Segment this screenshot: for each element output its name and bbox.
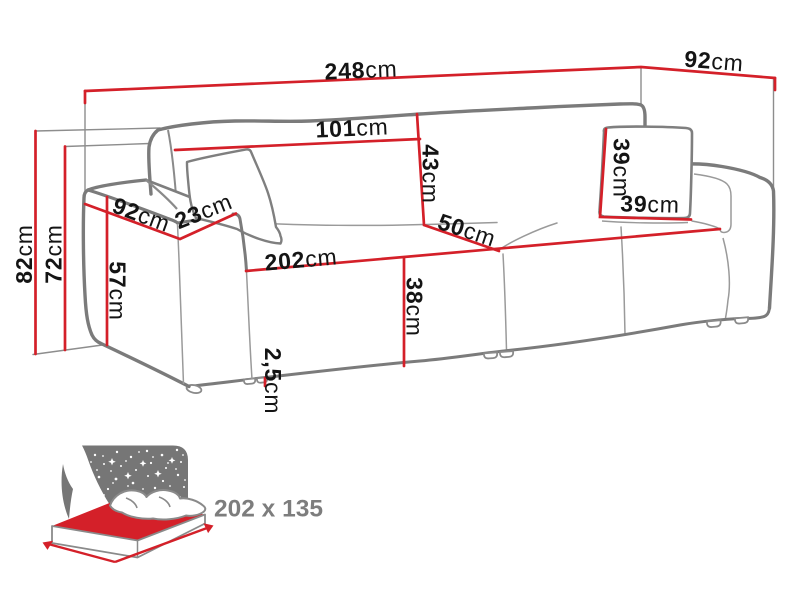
svg-text:248cm: 248cm <box>324 55 398 84</box>
svg-text:202 x 135: 202 x 135 <box>214 496 323 523</box>
svg-text:38cm: 38cm <box>402 277 428 336</box>
svg-text:57cm: 57cm <box>105 261 131 320</box>
svg-text:101cm: 101cm <box>315 113 389 142</box>
svg-text:2,5cm: 2,5cm <box>260 348 286 415</box>
svg-text:92cm: 92cm <box>683 46 744 77</box>
svg-text:202cm: 202cm <box>263 243 338 275</box>
svg-text:39cm: 39cm <box>620 190 680 217</box>
svg-text:82cm: 82cm <box>11 224 37 283</box>
svg-text:72cm: 72cm <box>41 224 67 283</box>
svg-text:50cm: 50cm <box>435 208 500 251</box>
svg-text:43cm: 43cm <box>418 144 444 203</box>
svg-text:39cm: 39cm <box>609 138 635 197</box>
